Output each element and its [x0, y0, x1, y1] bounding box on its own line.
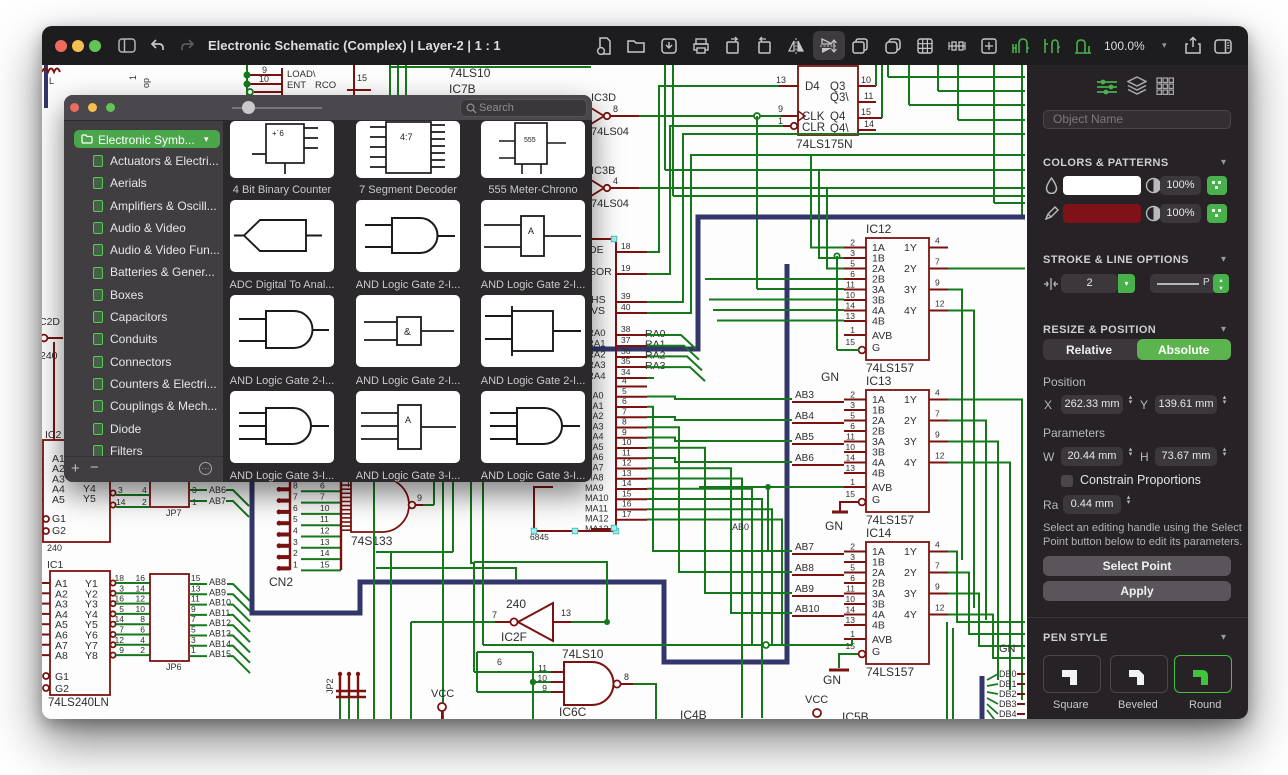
- svg-text:4: 4: [622, 376, 627, 386]
- svg-text:12: 12: [935, 299, 945, 309]
- svg-text:JP6: JP6: [166, 662, 182, 672]
- svg-text:13: 13: [191, 583, 201, 593]
- svg-text:3: 3: [293, 537, 298, 547]
- svg-text:16: 16: [136, 573, 146, 583]
- svg-text:14: 14: [846, 605, 856, 615]
- svg-text:JP7: JP7: [166, 508, 182, 518]
- svg-text:LOAD\: LOAD\: [287, 69, 316, 80]
- svg-text:36: 36: [621, 346, 631, 356]
- svg-text:3Y: 3Y: [904, 588, 917, 600]
- svg-text:AB8: AB8: [795, 563, 814, 574]
- svg-text:AB6: AB6: [795, 453, 814, 464]
- svg-text:13: 13: [846, 463, 856, 473]
- svg-text:4: 4: [935, 236, 940, 246]
- svg-text:16: 16: [115, 594, 125, 604]
- svg-text:74LS04: 74LS04: [591, 198, 629, 210]
- svg-text:AB5: AB5: [795, 432, 814, 443]
- svg-text:4: 4: [613, 176, 618, 186]
- svg-text:18: 18: [115, 573, 125, 583]
- svg-text:10: 10: [846, 290, 856, 300]
- svg-text:2: 2: [850, 542, 855, 552]
- svg-text:9: 9: [191, 604, 196, 614]
- svg-text:11: 11: [622, 447, 631, 457]
- svg-text:15: 15: [191, 573, 201, 583]
- svg-text:+´6: +´6: [272, 129, 284, 138]
- svg-text:13: 13: [846, 615, 856, 625]
- svg-text:GN: GN: [999, 643, 1016, 655]
- svg-text:14: 14: [136, 583, 146, 593]
- svg-text:CN2: CN2: [269, 575, 293, 589]
- svg-text:3: 3: [118, 485, 123, 495]
- svg-text:2: 2: [850, 238, 855, 248]
- svg-text:14: 14: [320, 548, 330, 558]
- svg-text:G2: G2: [55, 683, 69, 695]
- svg-text:13: 13: [320, 537, 330, 547]
- svg-text:9: 9: [778, 104, 783, 114]
- svg-text:39: 39: [621, 291, 631, 301]
- svg-text:38: 38: [621, 324, 631, 334]
- svg-text:GN: GN: [825, 519, 843, 533]
- svg-text:4: 4: [142, 485, 147, 495]
- svg-text:Q4: Q4: [830, 111, 846, 123]
- svg-text:Y5: Y5: [83, 493, 96, 505]
- svg-text:L: L: [49, 76, 54, 86]
- svg-text:5: 5: [850, 411, 855, 421]
- svg-text:4Y: 4Y: [904, 305, 917, 317]
- svg-text:74LS240LN: 74LS240LN: [48, 697, 109, 709]
- svg-text:10: 10: [622, 437, 632, 447]
- svg-text:5: 5: [191, 625, 196, 635]
- svg-text:ENT: ENT: [287, 80, 306, 91]
- svg-text:7: 7: [492, 610, 497, 620]
- svg-text:1Y: 1Y: [904, 546, 917, 558]
- svg-text:10: 10: [846, 594, 856, 604]
- svg-text:VCC: VCC: [805, 694, 828, 706]
- svg-text:3Y: 3Y: [904, 436, 917, 448]
- svg-text:2Y: 2Y: [904, 567, 917, 579]
- svg-text:2: 2: [140, 645, 145, 655]
- svg-text:&: &: [404, 327, 411, 338]
- svg-text:14: 14: [622, 478, 632, 488]
- svg-text:14: 14: [846, 453, 856, 463]
- svg-text:13: 13: [846, 311, 856, 321]
- svg-text:10: 10: [846, 442, 856, 452]
- svg-text:74S133: 74S133: [351, 534, 393, 548]
- svg-text:11: 11: [191, 594, 200, 604]
- svg-text:10: 10: [136, 604, 146, 614]
- svg-text:AB0: AB0: [732, 522, 749, 532]
- svg-text:1Y: 1Y: [904, 242, 917, 254]
- svg-text:15: 15: [320, 559, 330, 569]
- svg-text:GN: GN: [823, 673, 841, 687]
- svg-text:MA10: MA10: [585, 493, 609, 503]
- svg-text:2: 2: [850, 390, 855, 400]
- svg-text:AVB: AVB: [872, 330, 892, 342]
- svg-text:DB3: DB3: [999, 699, 1017, 709]
- svg-text:7: 7: [622, 406, 627, 416]
- svg-text:11: 11: [864, 91, 873, 101]
- svg-text:AB11: AB11: [209, 608, 230, 618]
- svg-text:AVB: AVB: [872, 482, 892, 494]
- svg-text:13: 13: [776, 75, 786, 85]
- svg-text:IC2F: IC2F: [501, 630, 527, 644]
- svg-text:RCO: RCO: [315, 80, 336, 91]
- svg-text:6: 6: [850, 269, 855, 279]
- svg-text:A: A: [405, 415, 411, 425]
- svg-text:7: 7: [119, 625, 124, 635]
- svg-text:8: 8: [140, 614, 145, 624]
- svg-text:IC7B: IC7B: [449, 82, 476, 96]
- svg-text:4: 4: [140, 635, 145, 645]
- svg-text:7: 7: [935, 257, 940, 267]
- svg-text:JP2: JP2: [325, 678, 335, 694]
- svg-text:4B: 4B: [872, 620, 885, 632]
- svg-text:14: 14: [116, 497, 126, 507]
- svg-text:4Y: 4Y: [904, 457, 917, 469]
- svg-text:15: 15: [846, 337, 856, 347]
- svg-text:VS: VS: [591, 305, 605, 317]
- svg-text:IC1: IC1: [47, 559, 64, 571]
- svg-text:5: 5: [119, 604, 124, 614]
- svg-text:9: 9: [622, 427, 627, 437]
- svg-text:AB4: AB4: [795, 411, 814, 422]
- svg-text:1: 1: [293, 559, 298, 569]
- svg-text:AB7: AB7: [795, 542, 814, 553]
- svg-text:8: 8: [624, 672, 629, 682]
- svg-text:4B: 4B: [872, 316, 885, 328]
- svg-text:16: 16: [622, 499, 632, 509]
- svg-text:14: 14: [115, 614, 125, 624]
- svg-text:1: 1: [850, 629, 855, 639]
- svg-text:15: 15: [357, 73, 367, 83]
- svg-text:35: 35: [621, 356, 631, 366]
- svg-text:74LS10: 74LS10: [562, 647, 604, 661]
- svg-text:AB12: AB12: [209, 618, 231, 628]
- svg-text:2: 2: [142, 497, 147, 507]
- svg-text:7: 7: [293, 492, 298, 502]
- svg-text:AB8: AB8: [209, 577, 226, 587]
- svg-text:11: 11: [320, 514, 329, 524]
- svg-text:1: 1: [850, 325, 855, 335]
- svg-text:AB7: AB7: [209, 496, 226, 506]
- svg-text:6: 6: [293, 503, 298, 513]
- svg-text:9: 9: [119, 645, 124, 655]
- svg-text:5: 5: [622, 386, 627, 396]
- svg-text:8: 8: [622, 417, 627, 427]
- svg-text:AB14: AB14: [209, 639, 231, 649]
- svg-text:74LS157: 74LS157: [866, 513, 914, 527]
- svg-text:13: 13: [622, 468, 632, 478]
- svg-text:7: 7: [320, 492, 325, 502]
- svg-text:IC12: IC12: [866, 222, 892, 236]
- svg-text:op: op: [141, 78, 151, 88]
- svg-text:GN: GN: [821, 370, 839, 384]
- svg-text:14: 14: [864, 119, 874, 129]
- svg-text:A5: A5: [52, 494, 65, 506]
- svg-text:6: 6: [850, 421, 855, 431]
- svg-text:IC3D: IC3D: [591, 92, 616, 104]
- svg-text:11: 11: [846, 432, 855, 442]
- svg-text:2: 2: [293, 548, 298, 558]
- svg-text:7: 7: [935, 409, 940, 419]
- svg-text:5: 5: [293, 514, 298, 524]
- svg-text:IC4B: IC4B: [680, 708, 707, 719]
- svg-text:4: 4: [293, 526, 298, 536]
- svg-text:CLR: CLR: [802, 122, 825, 134]
- svg-text:18: 18: [621, 241, 631, 251]
- svg-text:555: 555: [524, 137, 536, 144]
- svg-text:C2D: C2D: [42, 316, 60, 328]
- svg-text:MA13: MA13: [585, 524, 609, 534]
- svg-text:4:7: 4:7: [400, 132, 413, 142]
- svg-text:13: 13: [561, 608, 571, 618]
- svg-text:IC14: IC14: [866, 526, 892, 540]
- svg-text:4B: 4B: [872, 468, 885, 480]
- svg-text:12: 12: [115, 635, 125, 645]
- svg-text:1Y: 1Y: [904, 394, 917, 406]
- svg-text:IC5B: IC5B: [842, 710, 869, 719]
- svg-text:IC3B: IC3B: [591, 165, 615, 177]
- svg-text:12: 12: [622, 458, 632, 468]
- svg-text:Q3\: Q3\: [830, 92, 849, 104]
- svg-text:A8: A8: [55, 650, 68, 662]
- svg-text:AB13: AB13: [209, 629, 231, 639]
- svg-text:12: 12: [320, 526, 330, 536]
- svg-text:G: G: [872, 342, 880, 354]
- svg-text:SOR: SOR: [589, 266, 612, 278]
- svg-text:3: 3: [191, 635, 196, 645]
- svg-text:MA12: MA12: [585, 514, 609, 524]
- svg-text:AB3: AB3: [795, 390, 814, 401]
- svg-text:MA11: MA11: [585, 503, 608, 513]
- svg-text:AVB: AVB: [872, 634, 892, 646]
- svg-text:12: 12: [136, 594, 146, 604]
- svg-text:IC13: IC13: [866, 374, 892, 388]
- svg-text:G: G: [872, 494, 880, 506]
- svg-text:4: 4: [935, 540, 940, 550]
- svg-text:3: 3: [119, 583, 124, 593]
- svg-text:5: 5: [850, 259, 855, 269]
- svg-text:IC6C: IC6C: [559, 705, 587, 719]
- svg-text:9: 9: [417, 493, 422, 503]
- svg-text:37: 37: [621, 335, 631, 345]
- svg-text:7: 7: [191, 614, 196, 624]
- svg-text:15: 15: [622, 488, 632, 498]
- svg-text:G: G: [872, 646, 880, 658]
- svg-text:1: 1: [850, 477, 855, 487]
- svg-text:1: 1: [128, 75, 138, 80]
- svg-text:AB9: AB9: [209, 587, 226, 597]
- svg-text:DB2: DB2: [999, 689, 1017, 699]
- svg-text:D4: D4: [805, 81, 820, 93]
- svg-text:G2: G2: [52, 525, 66, 537]
- svg-text:AB10: AB10: [209, 598, 231, 608]
- svg-text:MA9: MA9: [585, 483, 604, 493]
- svg-text:11: 11: [846, 584, 855, 594]
- svg-text:3: 3: [850, 248, 855, 258]
- svg-text:4Y: 4Y: [904, 609, 917, 621]
- svg-text:7: 7: [935, 561, 940, 571]
- svg-text:74LS10: 74LS10: [449, 66, 491, 80]
- svg-text:AB9: AB9: [795, 584, 814, 595]
- svg-text:8: 8: [613, 104, 618, 114]
- svg-text:A: A: [528, 226, 534, 236]
- svg-text:10: 10: [259, 74, 269, 84]
- svg-text:AB6: AB6: [209, 485, 226, 495]
- svg-text:74LS04: 74LS04: [591, 126, 629, 138]
- svg-text:40: 40: [621, 302, 631, 312]
- svg-text:1: 1: [191, 645, 196, 655]
- svg-text:6: 6: [140, 625, 145, 635]
- svg-text:74LS175N: 74LS175N: [796, 137, 853, 151]
- svg-text:9: 9: [935, 582, 940, 592]
- svg-text:240: 240: [47, 543, 62, 553]
- svg-text:11: 11: [846, 280, 855, 290]
- svg-text:G1: G1: [55, 671, 69, 683]
- svg-text:DB4: DB4: [999, 709, 1017, 719]
- svg-text:2Y: 2Y: [904, 263, 917, 275]
- svg-text:74LS157: 74LS157: [866, 361, 914, 375]
- svg-text:Y8: Y8: [85, 650, 98, 662]
- svg-text:AB15: AB15: [209, 649, 231, 659]
- svg-text:17: 17: [622, 509, 632, 519]
- svg-text:12: 12: [935, 603, 945, 613]
- svg-text:240: 240: [506, 597, 526, 611]
- svg-text:3Y: 3Y: [904, 284, 917, 296]
- svg-text:DB0: DB0: [999, 669, 1017, 679]
- svg-text:14: 14: [846, 301, 856, 311]
- svg-text:5: 5: [850, 563, 855, 573]
- svg-text:15: 15: [846, 489, 856, 499]
- svg-text:1: 1: [778, 116, 783, 126]
- svg-text:2Y: 2Y: [904, 415, 917, 427]
- svg-text:3: 3: [850, 400, 855, 410]
- svg-text:4: 4: [935, 388, 940, 398]
- svg-text:6: 6: [497, 657, 502, 667]
- svg-text:12: 12: [935, 451, 945, 461]
- svg-text:15: 15: [861, 107, 871, 117]
- svg-text:10: 10: [861, 75, 871, 85]
- svg-text:19: 19: [621, 263, 631, 273]
- svg-text:DB1: DB1: [999, 679, 1017, 689]
- svg-text:6: 6: [850, 573, 855, 583]
- svg-text:VCC: VCC: [431, 688, 454, 700]
- svg-text:6: 6: [622, 396, 627, 406]
- svg-text:10: 10: [320, 503, 330, 513]
- svg-text:240: 240: [42, 350, 58, 362]
- svg-text:3: 3: [850, 552, 855, 562]
- svg-text:9: 9: [935, 430, 940, 440]
- svg-text:G1: G1: [52, 513, 66, 525]
- svg-text:74LS157: 74LS157: [866, 665, 914, 679]
- svg-text:AB10: AB10: [795, 604, 820, 615]
- svg-text:9: 9: [935, 278, 940, 288]
